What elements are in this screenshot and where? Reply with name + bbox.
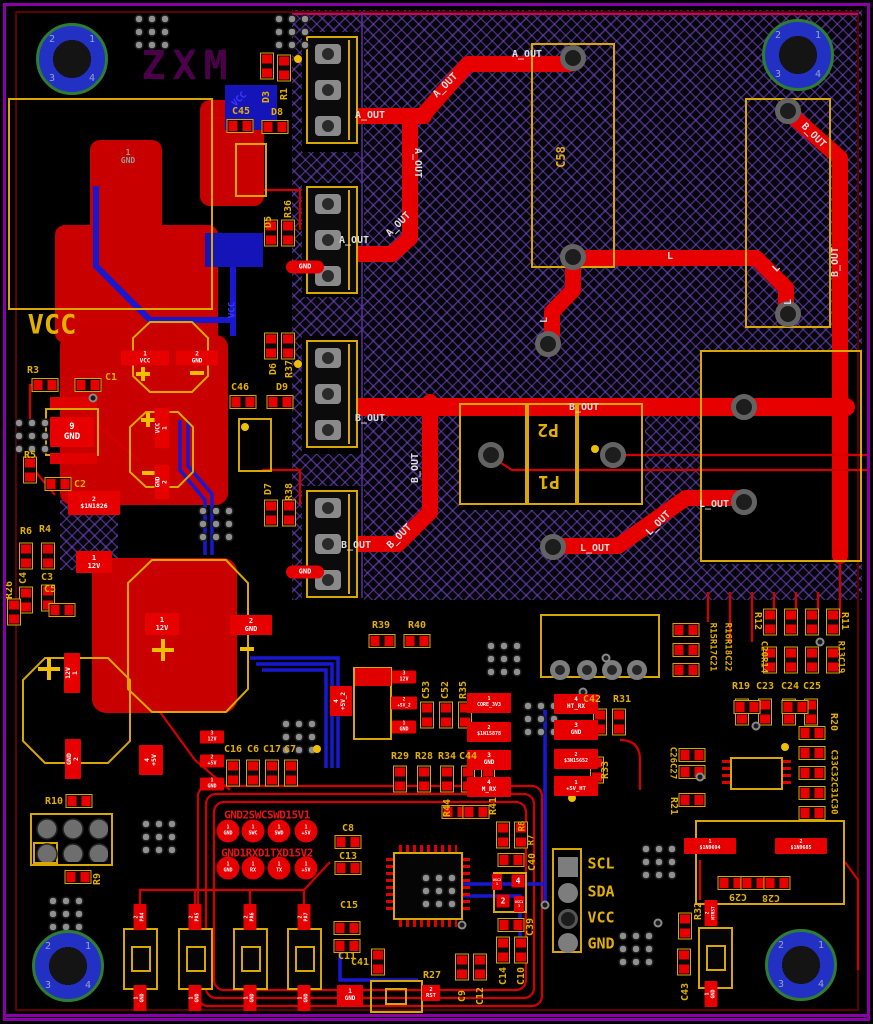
passive-component[interactable]: [679, 793, 706, 807]
smd-pad-labeled[interactable]: 1 GND: [200, 778, 224, 791]
via-grid: [273, 13, 311, 51]
mounting-hole: 21 34: [32, 930, 104, 1002]
pcb-label: R36: [284, 200, 294, 218]
pcb-label: R5: [24, 451, 36, 461]
passive-component[interactable]: [41, 543, 55, 570]
pcb-label: D5: [264, 216, 274, 228]
net-label: B_OUT: [341, 541, 371, 551]
pcb-label: C20R14: [759, 641, 768, 674]
net-label: L_OUT: [699, 500, 729, 510]
pcb-label: C45: [232, 107, 250, 117]
pcb-label: D9: [276, 383, 288, 393]
passive-component[interactable]: [673, 643, 700, 657]
via: [696, 773, 705, 782]
p2-label: P2: [537, 420, 559, 438]
header-pin[interactable]: 1 GND: [217, 820, 240, 843]
p1-label: P1: [538, 472, 560, 490]
passive-component[interactable]: [335, 835, 362, 849]
passive-component[interactable]: [49, 603, 76, 617]
pcb-label: C26C27: [668, 747, 677, 780]
smd-pad-labeled[interactable]: 1 GND: [337, 985, 363, 1007]
smd-pad-labeled[interactable]: 2 $1N9685: [775, 838, 827, 854]
net-label: L: [784, 299, 794, 305]
silk-dot: [294, 360, 302, 368]
passive-component[interactable]: [420, 702, 434, 729]
smd-pad-labeled[interactable]: 2 $3N15652: [554, 749, 598, 769]
passive-component[interactable]: [260, 53, 274, 80]
passive-component[interactable]: [226, 760, 240, 787]
smd-pad-labeled[interactable]: 1 GND: [134, 985, 147, 1011]
passive-component[interactable]: [678, 913, 692, 940]
silk-dot: [313, 745, 321, 753]
smd-pad-labeled[interactable]: 2 $1N1826: [68, 491, 120, 515]
smd-pad-labeled[interactable]: 1 +5V_HT: [554, 776, 598, 796]
smd-pad-labeled[interactable]: 2 $1N15878: [467, 722, 511, 742]
pcb-label: R26: [5, 581, 15, 599]
via-grid: [420, 872, 458, 910]
passive-component[interactable]: [455, 954, 469, 981]
smd-pad-labeled[interactable]: GND: [286, 261, 324, 274]
pcb-label: R4: [39, 525, 51, 535]
pcb-label: C13: [339, 852, 357, 862]
via: [654, 919, 663, 928]
smd-pad-labeled[interactable]: OSC2 1: [492, 874, 502, 890]
pcb-label: R41: [489, 797, 499, 815]
passive-component[interactable]: [782, 700, 809, 714]
i2c-sda-label: SDA: [587, 885, 614, 900]
pcb-label: R13C19: [836, 641, 845, 674]
passive-component[interactable]: [799, 806, 826, 820]
pcb-label: R1: [280, 88, 290, 100]
smd-pad-labeled[interactable]: 1 GND: [392, 721, 416, 734]
silk-dot: [294, 55, 302, 63]
through-hole-pad[interactable]: [560, 244, 586, 270]
power-connector[interactable]: [306, 36, 358, 144]
net-label: B_OUT: [569, 403, 599, 413]
net-label: L: [540, 317, 550, 323]
mcu-pins-left: [386, 858, 393, 914]
via-grid: [47, 895, 85, 933]
smd-pad[interactable]: [50, 453, 97, 464]
net-label: B_OUT: [831, 247, 841, 277]
pcb-label: C15: [340, 901, 358, 911]
net-label: A_OUT: [355, 111, 385, 121]
pcb-label: C25: [803, 682, 821, 692]
vcc-zone-label: VCC: [28, 312, 77, 339]
pcb-label: C7: [284, 745, 296, 755]
pcb-label: R16R18C22: [723, 623, 732, 672]
passive-component[interactable]: [281, 333, 295, 360]
i2c-pad-scl[interactable]: [558, 857, 578, 877]
c58-outline[interactable]: [531, 43, 615, 268]
soic8-pins-left: [722, 760, 730, 787]
passive-component[interactable]: [393, 766, 407, 793]
pcb-label: C14: [499, 967, 509, 985]
passive-component[interactable]: [281, 220, 295, 247]
smd-pad-labeled[interactable]: 4: [512, 875, 525, 888]
i2c-pad-gnd[interactable]: [558, 933, 578, 953]
smd-pad-labeled[interactable]: 4 +5V_2: [330, 686, 352, 716]
passive-component[interactable]: [32, 378, 59, 392]
passive-component[interactable]: [799, 766, 826, 780]
mounting-hole: 21 34: [765, 929, 837, 1001]
passive-component[interactable]: [335, 861, 362, 875]
via-grid: [197, 505, 235, 543]
smd-pad-labeled[interactable]: 2 GND: [176, 351, 218, 366]
through-hole-pad[interactable]: [560, 45, 586, 71]
smd-pad-labeled[interactable]: 4 +5V: [139, 745, 163, 775]
passive-component[interactable]: [679, 748, 706, 762]
passive-component[interactable]: [65, 870, 92, 884]
pcb-label: C5: [44, 585, 56, 595]
passive-component[interactable]: [805, 647, 819, 674]
pcb-label: C43: [681, 983, 691, 1001]
pcb-label: C29: [729, 891, 747, 901]
header-pin[interactable]: 1 SWD: [268, 820, 291, 843]
passive-component[interactable]: [265, 760, 279, 787]
tactile-button[interactable]: [123, 928, 158, 990]
pcb-board-view: ZXMVCCC45D8D3R1R36D5C46D9D6R37D7R38R3C1R…: [0, 0, 873, 1024]
smd-pad-labeled[interactable]: 3 12V: [200, 731, 224, 744]
header-2x3-pads[interactable]: [36, 818, 108, 862]
mcu-pins-bottom: [399, 920, 457, 927]
passive-component[interactable]: [282, 500, 296, 527]
passive-component[interactable]: [264, 333, 278, 360]
brand-text: ZXM: [141, 46, 234, 86]
net-label: A_OUT: [339, 236, 369, 246]
pcb-label: R27: [423, 971, 441, 981]
pcb-label: C53: [422, 681, 432, 699]
passive-component[interactable]: [677, 949, 691, 976]
power-module-outline[interactable]: [8, 98, 213, 310]
pcb-label: C33C32C31C30: [829, 749, 838, 814]
via-grid: [485, 640, 523, 678]
smd-pad-labeled[interactable]: 12V 1: [64, 653, 80, 693]
smd-pad[interactable]: [355, 668, 391, 686]
passive-component[interactable]: [826, 609, 840, 636]
passive-component[interactable]: [264, 500, 278, 527]
tactile-button[interactable]: [178, 928, 213, 990]
pcb-label: R28: [415, 752, 433, 762]
smd-pad-labeled[interactable]: GND 2: [155, 465, 170, 499]
header-pin[interactable]: 1 RX: [242, 857, 265, 880]
pcb-label: C9: [458, 990, 468, 1002]
soic-outline[interactable]: [730, 757, 783, 790]
mounting-hole: 21 34: [36, 23, 108, 95]
pcb-label: C3: [41, 573, 53, 583]
smd-pad-labeled[interactable]: 2 +5V_2: [391, 697, 417, 710]
pcb-label: C2: [74, 480, 86, 490]
pcb-label: C42: [583, 695, 601, 705]
smd-pad-labeled[interactable]: 1 GND: [705, 981, 718, 1007]
passive-component[interactable]: [498, 853, 525, 867]
through-hole-pad[interactable]: [478, 442, 504, 468]
pcb-label: D6: [269, 363, 279, 375]
passive-component[interactable]: [246, 760, 260, 787]
pcb-label: C46: [231, 383, 249, 393]
passive-component[interactable]: [612, 709, 626, 736]
pcb-label: R15R17C21: [708, 623, 717, 672]
pcb-label: R31: [613, 695, 631, 705]
output-zone-outline[interactable]: [700, 350, 862, 562]
via: [541, 901, 550, 910]
pcb-label: C41: [351, 958, 369, 968]
pcb-label: R34: [438, 752, 456, 762]
component-outline[interactable]: [385, 988, 407, 1005]
passive-component[interactable]: [463, 805, 490, 819]
pcb-label: R39: [372, 621, 390, 631]
net-label: A_OUT: [412, 148, 422, 178]
i2c-vcc-label: VCC: [587, 911, 614, 926]
smd-pad-labeled[interactable]: OSC1 3: [514, 896, 524, 912]
passive-component[interactable]: [227, 119, 254, 133]
passive-component[interactable]: [805, 609, 819, 636]
smd-pad-labeled[interactable]: GND 2: [65, 739, 81, 779]
pcb-label: C8: [342, 824, 354, 834]
smd-pad-labeled[interactable]: 1 12V: [76, 551, 112, 573]
via: [89, 394, 98, 403]
net-label: A_OUT: [512, 50, 542, 60]
smd-pad-labeled[interactable]: 1 CORE_3V3: [467, 693, 511, 713]
smd-pad-labeled[interactable]: 9 GND: [50, 417, 94, 447]
smd-pad-labeled[interactable]: VCC 1: [155, 408, 170, 448]
via-grid: [617, 930, 655, 968]
pcb-label: C10: [517, 967, 527, 985]
passive-component[interactable]: [799, 786, 826, 800]
passive-component[interactable]: [764, 876, 791, 890]
smd-pad-labeled[interactable]: 1 $1N9694: [684, 838, 736, 854]
smd-pad-labeled[interactable]: 1 GND: [244, 985, 257, 1011]
pcb-label: R6: [20, 527, 32, 537]
passive-component[interactable]: [284, 760, 298, 787]
header-pin[interactable]: 1 +5V: [295, 857, 318, 880]
pcb-label: R29: [391, 752, 409, 762]
passive-component[interactable]: [440, 766, 454, 793]
smd-pad-labeled[interactable]: 1 GND: [189, 985, 202, 1011]
passive-component[interactable]: [45, 477, 72, 491]
net-label: B_OUT: [355, 414, 385, 424]
passive-component[interactable]: [734, 700, 761, 714]
passive-component[interactable]: [673, 623, 700, 637]
power-connector[interactable]: [306, 340, 358, 448]
pcb-label: R33: [601, 761, 611, 779]
smd-pad-labeled[interactable]: 1 GND: [298, 985, 311, 1011]
pcb-label: C6: [247, 745, 259, 755]
passive-component[interactable]: [66, 794, 93, 808]
mounting-hole: 21 34: [762, 19, 834, 91]
net-label: L_OUT: [580, 544, 610, 554]
pcb-label: R9: [93, 873, 103, 885]
pcb-label: C4: [19, 572, 29, 584]
passive-component[interactable]: [7, 599, 21, 626]
header-pin[interactable]: 1 TX: [268, 857, 291, 880]
pcb-label: C52: [441, 681, 451, 699]
passive-component[interactable]: [763, 609, 777, 636]
tactile-button[interactable]: [698, 927, 733, 989]
component-outline[interactable]: [575, 403, 579, 505]
passive-component[interactable]: [334, 921, 361, 935]
passive-component[interactable]: [498, 918, 525, 932]
pcb-label: C23: [756, 682, 774, 692]
pcb-label: R10: [45, 797, 63, 807]
smd-pad-labeled[interactable]: 3 GND: [554, 720, 598, 740]
passive-component[interactable]: [404, 634, 431, 648]
smd-pad-labeled[interactable]: 2 PA4: [134, 904, 147, 930]
header-pin[interactable]: 1 SWC: [242, 820, 265, 843]
passive-component[interactable]: [496, 937, 510, 964]
pcb-label: C16: [224, 745, 242, 755]
passive-component[interactable]: [19, 543, 33, 570]
pcb-label: C17: [263, 745, 281, 755]
passive-component[interactable]: [75, 378, 102, 392]
connector-4pin-pads[interactable]: [540, 614, 660, 678]
pcb-label: R8: [519, 821, 528, 832]
smd-pad-labeled[interactable]: 2 +5V: [200, 755, 224, 768]
header-pin[interactable]: 1 GND: [217, 857, 240, 880]
i2c-pad-sda[interactable]: [558, 883, 578, 903]
passive-component[interactable]: [230, 395, 257, 409]
passive-component[interactable]: [799, 726, 826, 740]
pcb-label: C24: [781, 682, 799, 692]
passive-component[interactable]: [784, 647, 798, 674]
via: [458, 921, 467, 930]
smd-pad-labeled[interactable]: 2 PA5: [189, 904, 202, 930]
pcb-label: R3: [27, 366, 39, 376]
pcb-label: R35: [459, 681, 469, 699]
mcu-pins-right: [463, 858, 470, 914]
i2c-gnd-label: GND: [587, 937, 614, 952]
via: [752, 722, 761, 731]
passive-component[interactable]: [673, 663, 700, 677]
mcu-pins-top: [399, 845, 457, 852]
pcb-label: C28: [762, 892, 780, 902]
gnd-pad-label: 1 GND: [121, 149, 135, 165]
silk-dot: [591, 445, 599, 453]
pcb-label: R32: [694, 902, 704, 920]
net-label: L: [667, 252, 673, 262]
smd-pad-labeled[interactable]: 1 VCC: [121, 351, 169, 366]
via: [816, 638, 825, 647]
through-hole-pad[interactable]: [775, 98, 801, 124]
via-grid: [140, 818, 178, 856]
pcb-label: R19: [732, 682, 750, 692]
smd-pad-labeled[interactable]: GND: [286, 566, 324, 579]
pcb-label: C12: [476, 987, 486, 1005]
pcb-label: R38: [285, 483, 295, 501]
via: [602, 654, 611, 663]
smd-pad-labeled[interactable]: 2 HTRST: [705, 900, 718, 926]
passive-component[interactable]: [369, 634, 396, 648]
through-hole-pad[interactable]: [535, 331, 561, 357]
pcb-label: R40: [408, 621, 426, 631]
smd-pad-labeled[interactable]: 1 12V: [145, 613, 179, 635]
smd-pad-labeled[interactable]: 2 PA6: [244, 904, 257, 930]
pcb-label: R21: [668, 797, 678, 815]
swd-header-title: GND2SWCSWD15V1: [224, 810, 310, 821]
uart-header-title: GND1RXD1TXD15V2: [221, 848, 313, 859]
passive-component[interactable]: [371, 949, 385, 976]
net-label: B_OUT: [411, 453, 421, 483]
silk-dot: [241, 423, 249, 431]
header-pin[interactable]: 1 +5V: [295, 820, 318, 843]
pcb-label: R7: [528, 835, 537, 846]
through-hole-pad[interactable]: [731, 489, 757, 515]
pcb-label: C39: [526, 918, 536, 936]
tactile-button[interactable]: [287, 928, 322, 990]
passive-component[interactable]: [262, 120, 289, 134]
pcb-label: C44: [459, 752, 477, 762]
smd-pad-labeled[interactable]: 2: [497, 895, 510, 908]
passive-component[interactable]: [784, 609, 798, 636]
pcb-label: D7: [264, 483, 274, 495]
blue-pour[interactable]: [205, 233, 263, 267]
smd-pad-labeled[interactable]: 2 PA7: [298, 904, 311, 930]
passive-component[interactable]: [19, 587, 33, 614]
i2c-pad-vcc[interactable]: [558, 909, 578, 929]
passive-component[interactable]: [799, 746, 826, 760]
pcb-label: D8: [271, 108, 283, 118]
component-outline[interactable]: [525, 403, 529, 505]
smd-pad-labeled[interactable]: 4 M_RX: [467, 777, 511, 797]
smd-pad-labeled[interactable]: 2 RST: [422, 985, 440, 1001]
pcb-label: R12: [752, 612, 762, 630]
passive-component[interactable]: [277, 55, 291, 82]
passive-component[interactable]: [267, 395, 294, 409]
passive-component[interactable]: [417, 766, 431, 793]
i2c-scl-label: SCL: [587, 857, 614, 872]
via-grid: [640, 843, 678, 881]
passive-component[interactable]: [514, 937, 528, 964]
pcb-label: R44: [443, 799, 453, 817]
pcb-label: C58: [555, 146, 567, 168]
pcb-label: VCC: [229, 302, 238, 318]
through-hole-pad[interactable]: [731, 394, 757, 420]
smd-pad-labeled[interactable]: 2 GND: [230, 615, 272, 635]
tactile-button[interactable]: [233, 928, 268, 990]
soic-outline[interactable]: [235, 143, 267, 197]
passive-component[interactable]: [439, 702, 453, 729]
passive-component[interactable]: [496, 822, 510, 849]
pcb-label: R11: [839, 612, 849, 630]
pcb-label: D3: [262, 91, 272, 103]
smd-pad-labeled[interactable]: 3 12V: [392, 671, 416, 684]
through-hole-pad[interactable]: [540, 534, 566, 560]
pcb-label: C40: [528, 853, 538, 871]
soic8-pins-right: [783, 760, 791, 787]
silk-dot: [781, 743, 789, 751]
passive-component[interactable]: [473, 954, 487, 981]
pcb-label: R37: [285, 360, 295, 378]
pcb-label: C1: [105, 373, 117, 383]
through-hole-pad[interactable]: [600, 442, 626, 468]
pcb-label: R20: [828, 713, 838, 731]
